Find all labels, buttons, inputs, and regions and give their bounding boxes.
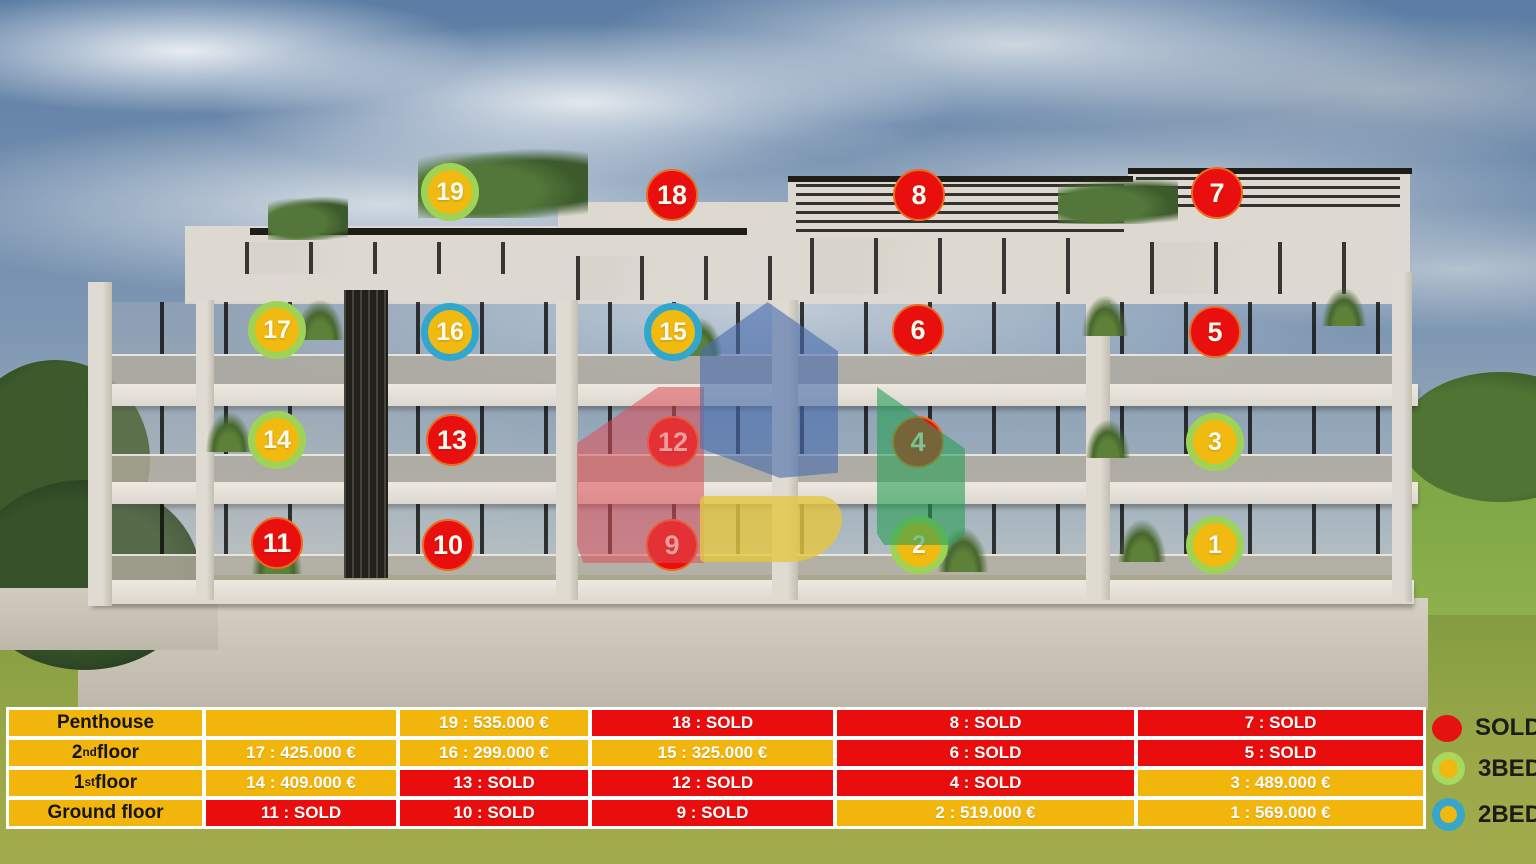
planter-tuft-6 <box>1086 420 1130 458</box>
roof-plants-3 <box>268 196 348 240</box>
unit-cell-r2-c4: 3 : 489.000 € <box>1138 770 1423 796</box>
unit-cell-r1-c2: 15 : 325.000 € <box>592 740 833 766</box>
unit-badge-17: 17 <box>248 301 306 359</box>
unit-badge-16: 16 <box>421 303 479 361</box>
unit-badge-7: 7 <box>1191 167 1243 219</box>
floor2-balcony-railing <box>96 354 1412 386</box>
unit-badge-9: 9 <box>646 519 698 571</box>
unit-badge-13: 13 <box>426 414 478 466</box>
unit-badge-3: 3 <box>1186 413 1244 471</box>
unit-badge-19: 19 <box>421 163 479 221</box>
unit-cell-r1-c0: 17 : 425.000 € <box>206 740 396 766</box>
end-wall-right <box>1392 272 1412 602</box>
unit-cell-r2-c2: 12 : SOLD <box>592 770 833 796</box>
legend-label-2bed: 2BED <box>1478 801 1536 829</box>
availability-table: Penthouse19 : 535.000 €18 : SOLD8 : SOLD… <box>6 707 1426 829</box>
unit-cell-r1-c4: 5 : SOLD <box>1138 740 1423 766</box>
unit-cell-r2-c0: 14 : 409.000 € <box>206 770 396 796</box>
front-paving <box>78 598 1428 710</box>
roof-fascia-right <box>1128 168 1412 174</box>
unit-cell-r3-c0: 11 : SOLD <box>206 800 396 826</box>
unit-cell-r1-c1: 16 : 299.000 € <box>400 740 588 766</box>
unit-badge-12: 12 <box>647 416 699 468</box>
unit-cell-r3-c4: 1 : 569.000 € <box>1138 800 1423 826</box>
twobed-dot-icon <box>1432 798 1465 831</box>
penthouse-glazing-a <box>245 242 507 274</box>
legend-item-3bed: 3BED <box>1432 752 1536 785</box>
floor-label-row-1: 2nd floor <box>9 740 202 766</box>
penthouse-glazing-d <box>1150 242 1392 294</box>
unit-badge-10: 10 <box>422 519 474 571</box>
unit-cell-r1-c3: 6 : SOLD <box>837 740 1134 766</box>
unit-badge-5: 5 <box>1189 306 1241 358</box>
floor-label-row-0: Penthouse <box>9 710 202 736</box>
unit-cell-r3-c2: 9 : SOLD <box>592 800 833 826</box>
unit-badge-18: 18 <box>646 169 698 221</box>
pier-3 <box>772 300 798 600</box>
floor-label-row-2: 1st floor <box>9 770 202 796</box>
unit-cell-r0-c3: 8 : SOLD <box>837 710 1134 736</box>
unit-cell-r0-c1: 19 : 535.000 € <box>400 710 588 736</box>
legend-item-sold: SOLD <box>1432 714 1536 742</box>
louvre-screen-left <box>344 290 388 578</box>
unit-cell-r2-c1: 13 : SOLD <box>400 770 588 796</box>
unit-badge-11: 11 <box>251 517 303 569</box>
planter-tuft-4 <box>1322 288 1366 326</box>
penthouse-glazing-c <box>810 238 1112 294</box>
unit-badge-8: 8 <box>893 169 945 221</box>
flyer-canvas: 19188717161565141312431110921 Penthouse1… <box>0 0 1536 864</box>
penthouse-glazing-b <box>576 256 774 300</box>
end-wall-left <box>88 282 112 606</box>
unit-badge-4: 4 <box>892 416 944 468</box>
unit-cell-r0-c2: 18 : SOLD <box>592 710 833 736</box>
unit-cell-r3-c3: 2 : 519.000 € <box>837 800 1134 826</box>
unit-cell-r2-c3: 4 : SOLD <box>837 770 1134 796</box>
planter-tuft-3 <box>1082 296 1128 336</box>
floor1-balcony-slab <box>90 482 1418 504</box>
unit-badge-6: 6 <box>892 304 944 356</box>
unit-badge-15: 15 <box>644 303 702 361</box>
unit-cell-r0-c4: 7 : SOLD <box>1138 710 1423 736</box>
floor-label-row-3: Ground floor <box>9 800 202 826</box>
floor2-balcony-slab <box>90 384 1418 406</box>
unit-cell-r3-c1: 10 : SOLD <box>400 800 588 826</box>
planter-tuft-5 <box>206 412 252 452</box>
unit-cell-r0-c0 <box>206 710 396 736</box>
unit-badge-1: 1 <box>1186 516 1244 574</box>
ground-base-slab <box>92 580 1414 604</box>
pier-2 <box>556 300 578 600</box>
sold-dot-icon <box>1432 715 1462 742</box>
planter-tuft-9 <box>1118 520 1166 562</box>
legend-label-3bed: 3BED <box>1478 755 1536 783</box>
roof-plants-2 <box>1058 178 1178 224</box>
legend-label-sold: SOLD <box>1475 714 1536 742</box>
legend-item-2bed: 2BED <box>1432 798 1536 831</box>
unit-badge-2: 2 <box>890 516 948 574</box>
threebed-dot-icon <box>1432 752 1465 785</box>
unit-badge-14: 14 <box>248 411 306 469</box>
